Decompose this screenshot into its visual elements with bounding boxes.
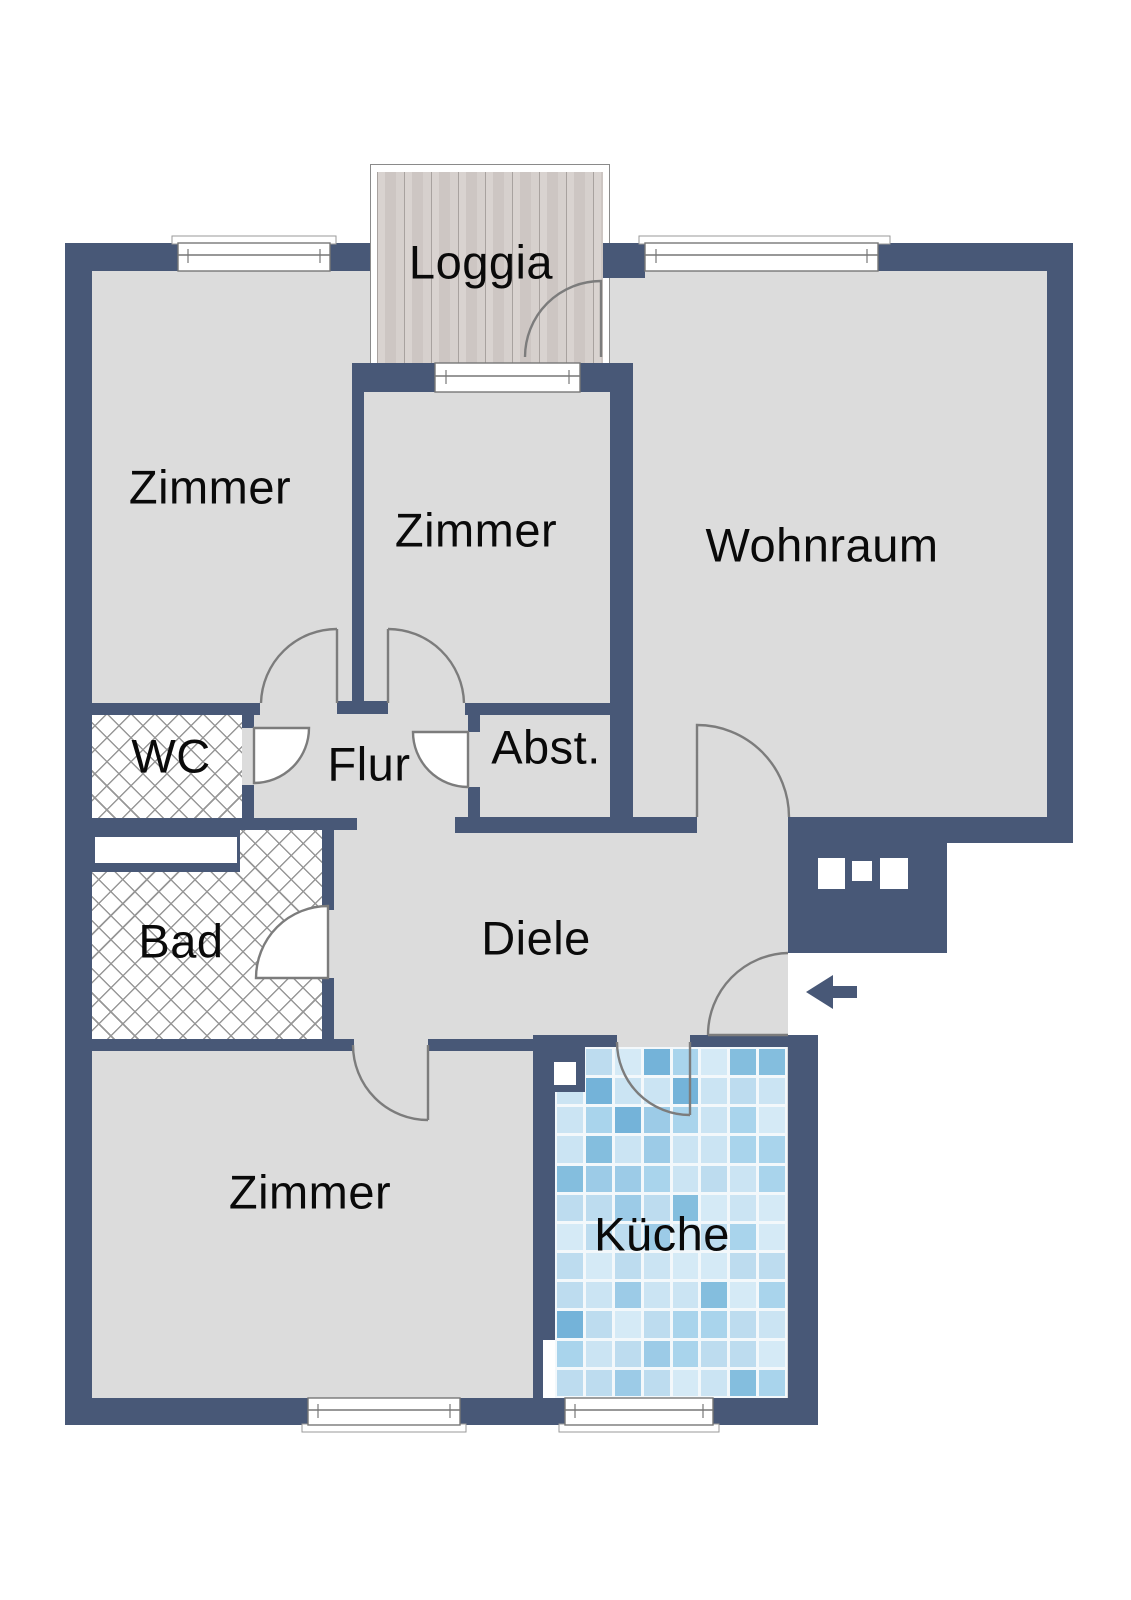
wall [352,363,435,392]
window [302,1398,466,1432]
wall [580,363,610,392]
wall [337,701,388,714]
entrance-shaft-1 [818,858,845,889]
entrance-shaft-2 [852,861,872,881]
wall [788,1035,818,1425]
wall [92,1039,354,1051]
wall [65,243,92,1425]
wall [65,818,357,830]
room-label-zimmer-top-left: Zimmer [129,460,291,515]
entrance-shaft-block [788,843,947,953]
wall [788,817,1073,843]
kueche-wall-niche [543,1340,555,1398]
room-label-loggia: Loggia [409,235,553,290]
wall [460,1398,565,1425]
floor-plan: Loggia Zimmer Zimmer Wohnraum WC Flur Ab… [0,0,1131,1600]
wall [322,978,334,1040]
wall [352,392,364,703]
room-label-wc: WC [131,729,210,784]
window [172,236,336,271]
wall [533,1047,555,1340]
wall [428,1039,533,1051]
room-label-diele: Diele [481,911,591,966]
wall [242,715,254,728]
wall [468,715,480,732]
wall [65,1398,308,1425]
entrance-arrow-icon [806,975,857,1009]
entrance-shaft-3 [880,858,908,889]
wall [88,703,260,715]
room-label-kueche: Küche [594,1207,730,1262]
wall [242,785,254,818]
wall [465,703,633,715]
wall [468,787,480,817]
bad-wall-niche [95,837,237,863]
loggia-door-notch [610,278,633,363]
wall [610,363,633,817]
room-label-zimmer-bottom: Zimmer [229,1165,391,1220]
wall [533,1340,543,1398]
wall [1047,243,1073,843]
wall [322,830,334,910]
window [639,236,890,271]
window [559,1398,719,1432]
room-label-bad: Bad [138,914,223,969]
room-label-abstellraum: Abst. [491,720,601,775]
wall [878,243,1073,271]
wall [690,1035,788,1047]
wall [455,817,697,833]
room-label-wohnraum: Wohnraum [705,518,938,573]
kueche-shaft [554,1062,576,1085]
room-label-zimmer-top-middle: Zimmer [395,503,557,558]
wall [603,243,645,278]
wall [330,243,370,271]
room-label-flur: Flur [328,737,411,792]
